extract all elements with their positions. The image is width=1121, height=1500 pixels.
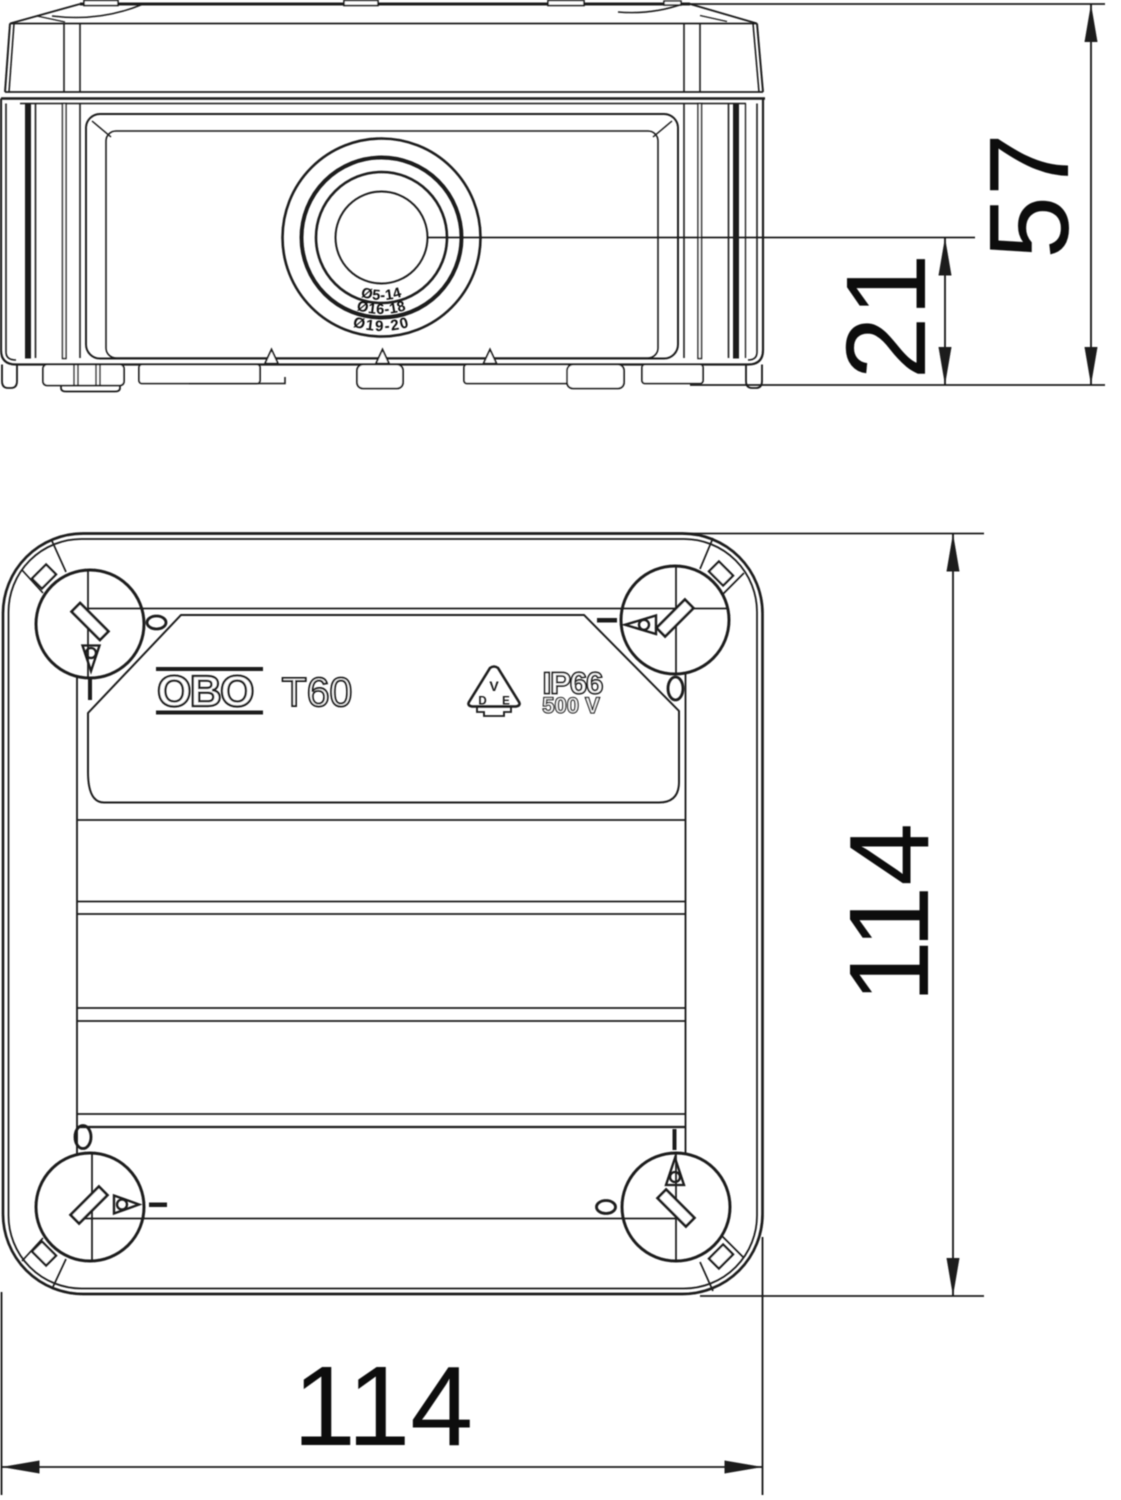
svg-text:500 V: 500 V [542, 693, 600, 718]
svg-text:OBO: OBO [157, 667, 253, 716]
svg-text:57: 57 [966, 133, 1092, 259]
svg-text:E: E [502, 696, 510, 708]
svg-text:114: 114 [826, 823, 952, 1003]
svg-text:114: 114 [293, 1343, 473, 1469]
svg-text:T60: T60 [282, 669, 353, 715]
svg-text:V: V [489, 678, 499, 694]
svg-text:D: D [478, 696, 486, 708]
svg-text:21: 21 [823, 254, 949, 380]
